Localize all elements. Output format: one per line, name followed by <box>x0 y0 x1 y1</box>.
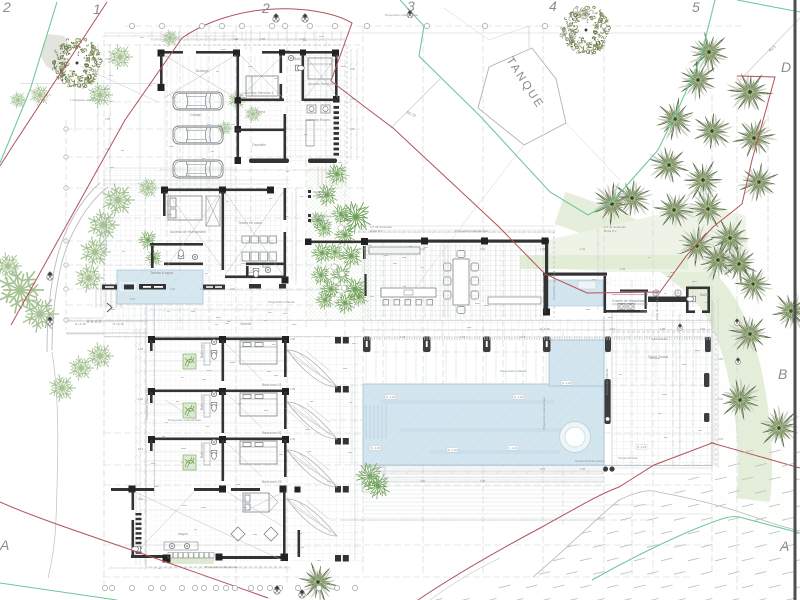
svg-text:D: D <box>781 59 791 75</box>
svg-text:2.45: 2.45 <box>580 467 586 471</box>
svg-text:0.15: 0.15 <box>718 437 724 441</box>
svg-text:3.60: 3.60 <box>420 479 426 483</box>
svg-text:4: 4 <box>549 0 557 14</box>
svg-text:0.15: 0.15 <box>138 447 144 451</box>
svg-text:1.85: 1.85 <box>540 247 546 251</box>
svg-text:1.20: 1.20 <box>138 397 144 401</box>
svg-text:N -1.20: N -1.20 <box>386 395 396 399</box>
svg-text:1.85: 1.85 <box>290 387 296 391</box>
svg-text:0.15: 0.15 <box>130 297 136 301</box>
svg-text:mayor: mayor <box>178 532 189 536</box>
svg-text:Acceso Servicio 1: Acceso Servicio 1 <box>308 82 337 86</box>
svg-text:Bedroom 01: Bedroom 01 <box>262 383 282 387</box>
svg-text:B: B <box>778 366 787 382</box>
svg-text:Proyección cubierta: Proyección cubierta <box>268 300 295 304</box>
svg-text:Tomas Piscina retorno: Tomas Piscina retorno <box>575 459 605 463</box>
svg-text:N +0.15: N +0.15 <box>75 322 86 326</box>
svg-text:A: A <box>0 537 9 553</box>
svg-text:N +0.15: N +0.15 <box>113 322 124 326</box>
svg-text:N -1.20: N -1.20 <box>508 446 518 450</box>
svg-text:1.85: 1.85 <box>480 479 486 483</box>
svg-text:3.60: 3.60 <box>480 247 486 251</box>
svg-text:1.85: 1.85 <box>660 327 666 331</box>
svg-text:Garaje: Garaje <box>190 113 201 117</box>
svg-text:Bodega: Bodega <box>196 69 208 73</box>
svg-text:Tabla de casita vecino: Tabla de casita vecino <box>655 290 659 320</box>
svg-text:A: A <box>779 538 789 554</box>
svg-text:4.20: 4.20 <box>420 247 426 251</box>
svg-text:N -0.45: N -0.45 <box>540 327 550 331</box>
svg-text:0.15: 0.15 <box>610 327 616 331</box>
svg-text:Bathroom: Bathroom <box>200 394 204 410</box>
svg-text:3.60: 3.60 <box>718 357 724 361</box>
svg-text:Línea: Línea <box>256 110 265 114</box>
svg-text:Rope # V: Rope # V <box>604 229 617 233</box>
svg-text:N -1.20: N -1.20 <box>562 381 572 385</box>
svg-text:Proyección cubierta: Proyección cubierta <box>500 369 527 373</box>
svg-text:Baño: Baño <box>262 265 270 269</box>
svg-text:0.90: 0.90 <box>350 67 356 71</box>
svg-text:3.60: 3.60 <box>700 327 706 331</box>
svg-text:Vereda: Vereda <box>240 322 251 326</box>
svg-text:Proyección cubierta losa: Proyección cubierta losa <box>145 387 149 420</box>
svg-text:3.60: 3.60 <box>138 497 144 501</box>
svg-text:zocalo 4 m: zocalo 4 m <box>313 218 328 222</box>
svg-text:N -1.20: N -1.20 <box>371 446 381 450</box>
svg-text:Proyección cubierta: Proyección cubierta <box>605 368 609 395</box>
svg-text:Acceso de Huespedes: Acceso de Huespedes <box>170 230 206 234</box>
svg-text:4.20: 4.20 <box>230 287 236 291</box>
svg-text:1.85: 1.85 <box>105 117 111 121</box>
svg-text:2.45: 2.45 <box>105 147 111 151</box>
svg-text:Laundry Room: Laundry Room <box>306 118 330 122</box>
svg-text:10cm # 2.5: 10cm # 2.5 <box>313 194 328 198</box>
svg-text:Proyección cubierta losa: Proyección cubierta losa <box>168 418 201 422</box>
svg-text:Proyección cubierta losa: Proyección cubierta losa <box>455 229 488 233</box>
svg-text:Bedroom 02: Bedroom 02 <box>262 431 282 435</box>
svg-text:2.45: 2.45 <box>290 437 296 441</box>
svg-text:Acceso Servicio 1: Acceso Servicio 1 <box>245 91 274 95</box>
svg-text:Proyección viga canal: Proyección viga canal <box>552 270 556 300</box>
svg-text:Teatro en casa: Teatro en casa <box>238 221 262 225</box>
svg-text:4.20: 4.20 <box>520 335 526 339</box>
svg-text:Bedroom 03: Bedroom 03 <box>262 480 282 484</box>
svg-text:Rope # V: Rope # V <box>370 229 383 233</box>
svg-text:2.45: 2.45 <box>105 57 111 61</box>
svg-text:0.90: 0.90 <box>290 337 296 341</box>
svg-text:1.20: 1.20 <box>200 287 206 291</box>
svg-text:Toldo: Toldo <box>640 309 648 313</box>
svg-text:Tarima # agua: Tarima # agua <box>150 271 173 275</box>
svg-text:2.45: 2.45 <box>460 335 466 339</box>
svg-text:Baño: Baño <box>700 293 708 297</box>
svg-text:4.20: 4.20 <box>170 287 176 291</box>
svg-text:5: 5 <box>692 0 700 15</box>
svg-text:1.20: 1.20 <box>580 247 586 251</box>
svg-text:Salon Social: Salon Social <box>648 355 668 359</box>
svg-text:3: 3 <box>407 0 415 14</box>
svg-text:1.85: 1.85 <box>138 347 144 351</box>
svg-text:2.45: 2.45 <box>400 335 406 339</box>
svg-text:Depósito: Depósito <box>252 143 266 147</box>
svg-text:Baño: Baño <box>294 57 302 61</box>
svg-text:1: 1 <box>93 1 101 17</box>
svg-text:N -1.20: N -1.20 <box>448 448 458 452</box>
svg-text:2.45: 2.45 <box>620 267 626 271</box>
svg-text:4.20: 4.20 <box>718 397 724 401</box>
svg-text:2: 2 <box>2 0 11 15</box>
svg-text:Proyección cubierta losa: Proyección cubierta losa <box>205 565 238 569</box>
svg-text:3.60: 3.60 <box>350 127 356 131</box>
svg-text:4.20: 4.20 <box>233 37 239 41</box>
svg-text:Proyección cubierta losa: Proyección cubierta losa <box>542 397 546 430</box>
svg-text:Tomas Piscina: Tomas Piscina <box>618 456 638 460</box>
svg-text:N -1.20: N -1.20 <box>514 395 524 399</box>
svg-text:2: 2 <box>261 0 270 16</box>
svg-text:1.85: 1.85 <box>350 97 356 101</box>
svg-text:0.15: 0.15 <box>540 467 546 471</box>
svg-text:1.20: 1.20 <box>300 37 306 41</box>
svg-text:1.85: 1.85 <box>260 37 266 41</box>
svg-text:Muro Verde: Muro Verde <box>652 337 668 341</box>
svg-text:Bathroom: Bathroom <box>200 342 204 358</box>
svg-text:Cuarto de Maquinas: Cuarto de Maquinas <box>612 299 645 303</box>
svg-text:Bathroom: Bathroom <box>200 442 204 458</box>
svg-text:2.45: 2.45 <box>360 247 366 251</box>
svg-text:N -1.20: N -1.20 <box>637 445 647 449</box>
svg-text:Proyección cubierta losa: Proyección cubierta losa <box>104 217 108 250</box>
svg-text:1.85: 1.85 <box>105 87 111 91</box>
